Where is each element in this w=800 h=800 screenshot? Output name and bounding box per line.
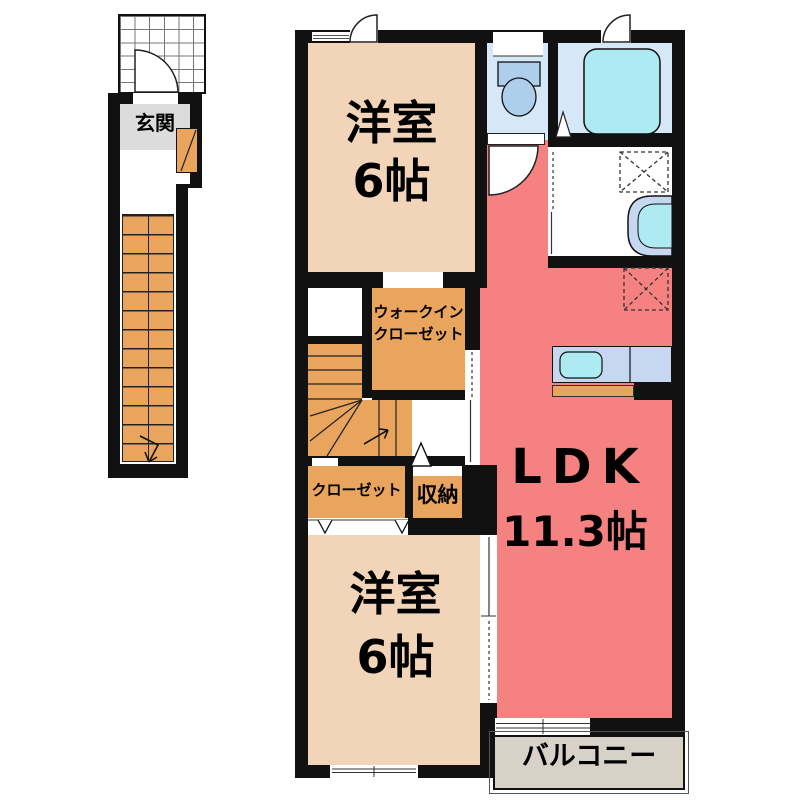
bedroom-top-door-gap xyxy=(350,30,378,43)
wall-toilet-bath xyxy=(548,43,558,140)
toilet-window xyxy=(493,32,543,56)
bedroom-top-name-label: 洋室 xyxy=(308,99,475,147)
wall-hall-stairs xyxy=(308,336,362,344)
closet-top-gap xyxy=(312,458,338,466)
kitchen-floor-strip xyxy=(552,385,634,397)
ldk-bottom-wall xyxy=(590,718,685,735)
wall-below-wic xyxy=(372,390,465,400)
ldk-name-label: LDK xyxy=(478,442,672,492)
storage-door-gap xyxy=(413,466,462,476)
toilet-room xyxy=(487,43,548,140)
wic-label-line2: クローゼット xyxy=(372,327,465,343)
kitchen-counter xyxy=(552,346,672,383)
closet-sliding-strip xyxy=(308,518,408,535)
bedroom-top-window xyxy=(312,32,350,41)
unit-left-wall xyxy=(295,30,308,778)
toilet-door-leaf xyxy=(487,133,545,145)
unit-stairs-lower xyxy=(308,400,412,456)
washroom xyxy=(548,147,672,256)
kitchen-wall-jog xyxy=(634,383,672,400)
bedroom-bottom-area-label: 6帖 xyxy=(308,633,483,681)
entry-staircase xyxy=(122,214,174,462)
entrance-door-gap xyxy=(133,93,178,104)
balcony-label: バルコニー xyxy=(493,743,685,771)
genkan-label: 玄関 xyxy=(120,113,190,134)
wall-bedroomtop-ldk xyxy=(475,43,487,272)
unit-right-wall xyxy=(672,30,685,720)
storage-label: 収納 xyxy=(413,484,462,506)
wall-below-bath xyxy=(548,133,672,147)
bedroom-bottom-name-label: 洋室 xyxy=(308,570,483,618)
bath-door-gap xyxy=(601,30,631,43)
bathroom xyxy=(558,43,672,140)
wall-wic-ldk xyxy=(465,288,480,350)
ldk-balcony-window xyxy=(495,718,592,735)
bedroom-bottom-window xyxy=(330,765,418,778)
wall-above-storage xyxy=(405,456,465,466)
wic-label-line1: ウォークイン xyxy=(372,305,465,321)
upper-hall xyxy=(308,288,362,336)
bedroom-top-area-label: 6帖 xyxy=(308,157,475,205)
ldk-area-label: 11.3帖 xyxy=(478,510,672,554)
wic-door-gap xyxy=(383,272,443,288)
entrance-porch-tiles xyxy=(118,14,206,94)
floorplan-page: { "labels": { "genkan": "玄関", "bedroom_t… xyxy=(0,0,800,800)
wic-left-wall xyxy=(362,288,372,398)
washroom-bottom-wall xyxy=(548,256,672,268)
shoe-cabinet xyxy=(176,128,198,173)
closet-label: クローゼット xyxy=(308,483,405,499)
unit-stairs-upper xyxy=(308,344,362,400)
